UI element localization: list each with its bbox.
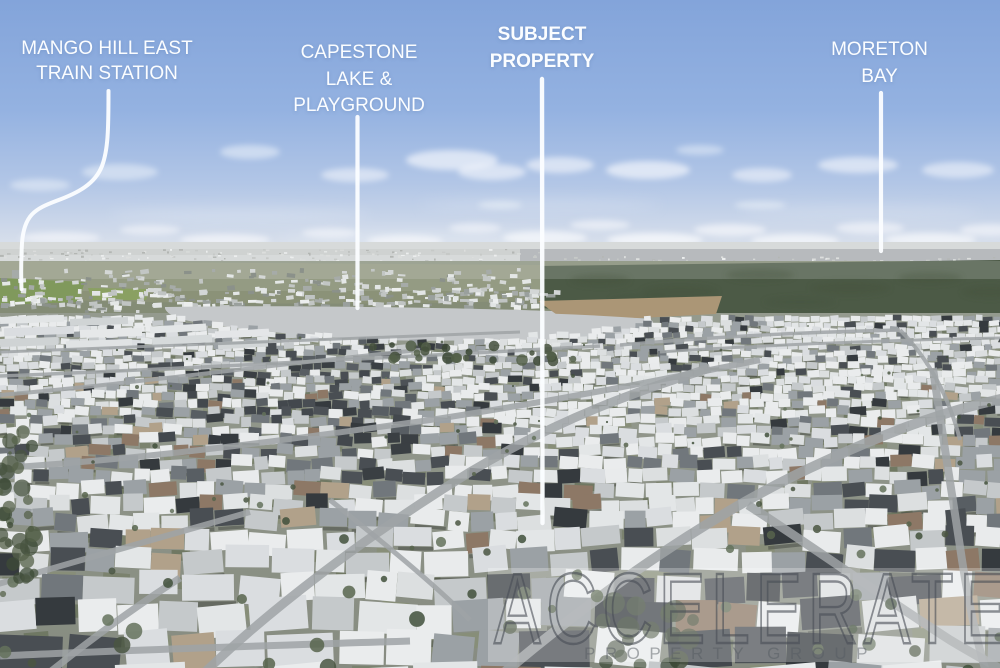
- svg-text:PROPERTY GROUP: PROPERTY GROUP: [584, 644, 877, 663]
